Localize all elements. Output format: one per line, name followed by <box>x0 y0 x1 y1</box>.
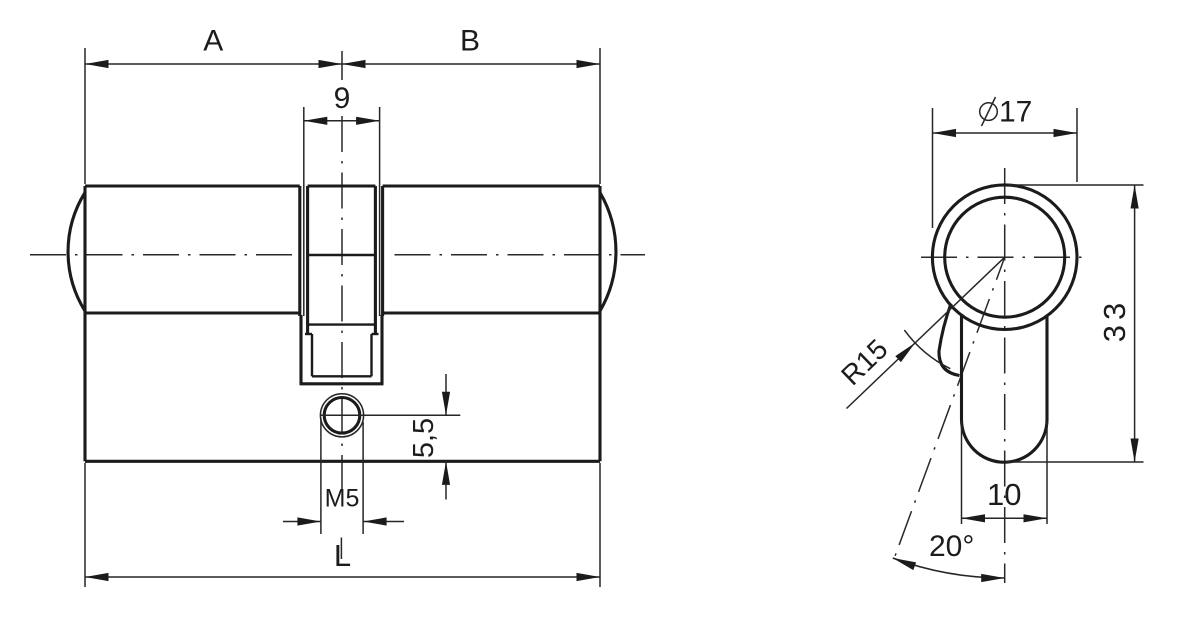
svg-text:B: B <box>460 25 480 58</box>
svg-text:R15: R15 <box>835 333 893 391</box>
svg-text:M5: M5 <box>325 485 360 513</box>
svg-text:9: 9 <box>334 82 351 115</box>
svg-text:A: A <box>203 25 223 58</box>
svg-text:10: 10 <box>987 477 1021 512</box>
svg-text:20°: 20° <box>929 530 974 563</box>
svg-text:17: 17 <box>999 96 1032 129</box>
svg-text:L: L <box>334 538 351 573</box>
svg-text:33: 33 <box>1097 298 1132 342</box>
svg-text:5,5: 5,5 <box>408 418 440 458</box>
